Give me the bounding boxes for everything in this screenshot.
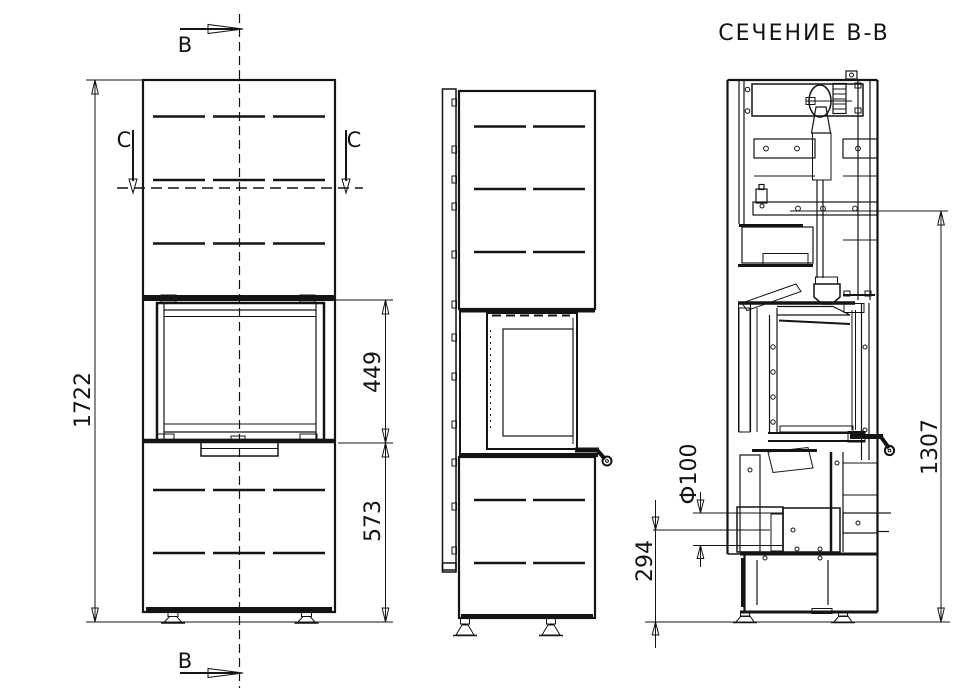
side-door xyxy=(460,309,577,453)
section-marker-b-bottom: B xyxy=(178,649,243,678)
firebox-door-front xyxy=(157,303,324,440)
dim-1307-text: 1307 xyxy=(918,419,943,475)
side-top-box xyxy=(459,91,595,316)
dimension-flue-axis-height: 294 xyxy=(633,500,770,648)
side-foot-right xyxy=(539,618,563,636)
section-c-left-label: C xyxy=(117,128,132,152)
rear-spacer-strip xyxy=(443,89,457,572)
fireplace-technical-drawing: B B C C xyxy=(0,0,960,697)
front-foot-left xyxy=(161,612,185,623)
dim-449-text: 449 xyxy=(361,351,386,393)
threaded-rod xyxy=(833,84,846,114)
lower-compartment xyxy=(733,448,877,623)
dimension-firebox-height: 449 xyxy=(327,300,393,443)
section-marker-b-top: B xyxy=(178,25,243,58)
dim-f100-text: Ф100 xyxy=(677,444,702,505)
door-handle-section xyxy=(850,437,894,532)
dim-294-text: 294 xyxy=(633,540,658,582)
dimension-overall-height: 1722 xyxy=(71,80,393,622)
front-view: B B C C xyxy=(71,14,393,688)
section-foot-left xyxy=(733,613,757,623)
dimension-pedestal-height: 573 xyxy=(361,443,389,622)
dimension-flue-diameter: Ф100 xyxy=(677,444,783,567)
section-c-right-label: C xyxy=(347,128,362,152)
section-foot-right xyxy=(831,613,855,623)
side-pedestal xyxy=(453,455,598,636)
side-foot-left xyxy=(453,618,477,636)
section-view: СЕЧЕНИЕ B-B xyxy=(633,21,950,648)
section-b-bottom-label: B xyxy=(178,649,192,673)
section-title: СЕЧЕНИЕ B-B xyxy=(718,21,889,46)
dim-1722-text: 1722 xyxy=(71,372,96,428)
section-b-top-label: B xyxy=(178,33,192,57)
side-view xyxy=(443,89,612,636)
front-foot-right xyxy=(295,612,319,623)
dim-573-text: 573 xyxy=(361,500,386,542)
firebox-section xyxy=(739,303,870,460)
refractory-lining xyxy=(739,308,750,432)
handle-knob xyxy=(603,457,612,466)
